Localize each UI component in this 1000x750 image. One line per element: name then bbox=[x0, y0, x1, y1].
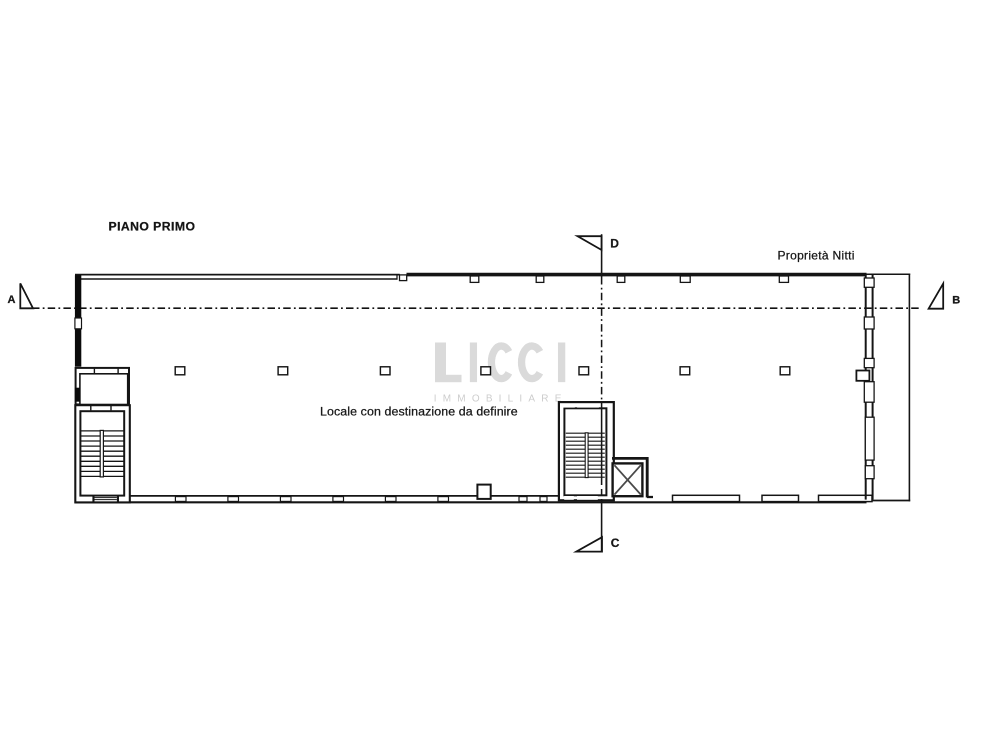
svg-text:D: D bbox=[610, 237, 619, 251]
svg-text:B: B bbox=[952, 295, 960, 307]
svg-text:C: C bbox=[611, 536, 620, 550]
svg-text:PIANO PRIMO: PIANO PRIMO bbox=[109, 220, 196, 234]
svg-text:Proprietà Nitti: Proprietà Nitti bbox=[778, 248, 855, 262]
svg-text:A: A bbox=[8, 294, 16, 306]
svg-text:IMMOBILIARE: IMMOBILIARE bbox=[434, 394, 568, 405]
svg-text:Locale con destinazione da def: Locale con destinazione da definire bbox=[320, 405, 518, 419]
